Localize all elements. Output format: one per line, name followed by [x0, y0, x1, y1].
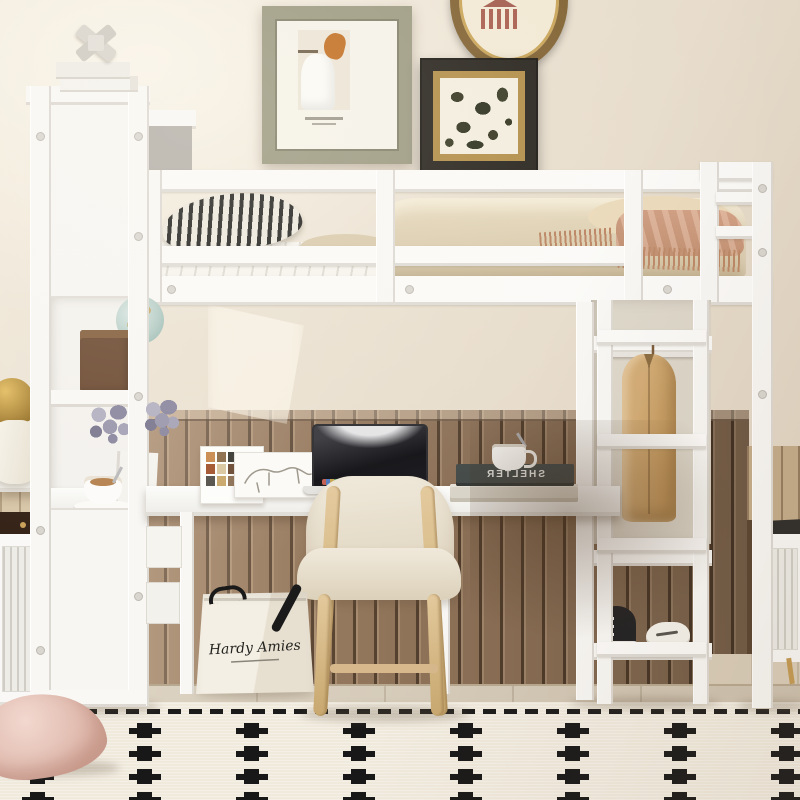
rug-motif: [450, 768, 482, 786]
poster-figure-body: [301, 54, 335, 110]
screw: [36, 132, 45, 141]
rug-motif: [343, 745, 375, 763]
screw: [134, 132, 143, 141]
rug-motif: [129, 768, 161, 786]
sculpture-cube: [88, 35, 104, 51]
svg-text:Hardy Amies: Hardy Amies: [207, 638, 301, 659]
oval-building-sketch: [481, 0, 519, 31]
screw: [134, 232, 143, 241]
screw: [663, 285, 672, 294]
poster-caption-line-2: [312, 123, 336, 125]
rug-motif: [22, 791, 54, 800]
guard-post-right: [624, 170, 643, 302]
rug-motif: [771, 768, 800, 786]
rug-motif: [450, 722, 482, 740]
chair-wall-shadow: [470, 420, 750, 650]
underdesk-side-panel: [180, 512, 194, 694]
footboard-bar-1: [716, 192, 752, 205]
rug-motif: [129, 722, 161, 740]
storage-box-1: [146, 526, 182, 568]
chair-seat: [297, 548, 461, 600]
rug-motif: [664, 768, 696, 786]
bed-top-guardrail: [143, 170, 772, 192]
rug-motif: [771, 722, 800, 740]
rug-motif: [664, 722, 696, 740]
storage-box-2: [146, 582, 180, 624]
rug-motif: [664, 791, 696, 800]
rug-motif: [343, 791, 375, 800]
poster-caption-line: [305, 117, 343, 120]
screw: [36, 526, 45, 535]
screw: [758, 184, 767, 193]
rug-motif: [343, 722, 375, 740]
shopping-bag: Hardy Amies: [196, 590, 314, 694]
rug-motif: [236, 745, 268, 763]
black-gold-frame: [420, 58, 538, 174]
screw: [167, 285, 176, 294]
poster-artwork: [298, 30, 350, 110]
rug-motif: [450, 745, 482, 763]
rug-motif: [557, 722, 589, 740]
rug-motif: [236, 722, 268, 740]
tower-side-shadow-panel: [146, 126, 192, 176]
rug-motif: [557, 768, 589, 786]
tower-upper-door: [46, 102, 130, 298]
screw: [405, 285, 414, 294]
bedroom-scene: SHELTER Hardy Amies: [0, 0, 800, 800]
screw: [134, 392, 143, 401]
tower-stile-left: [30, 86, 51, 706]
radio-knob: [20, 522, 26, 528]
rug-motif: [771, 745, 800, 763]
floral-artwork: [433, 71, 525, 161]
guard-post-center: [376, 170, 395, 302]
rug-motif: [129, 745, 161, 763]
screw: [134, 592, 143, 601]
knot-sculpture: [68, 18, 124, 68]
sage-picture-frame: [262, 6, 412, 164]
rug-motif: [236, 791, 268, 800]
screw: [36, 646, 45, 655]
rug-motif: [236, 768, 268, 786]
coffee-cup: [74, 474, 134, 512]
tower-lower-door: [46, 508, 130, 692]
screw: [758, 248, 767, 257]
footboard-bar-2: [716, 226, 752, 239]
screw: [758, 390, 767, 399]
rug-motif: [557, 791, 589, 800]
rug-motif: [450, 791, 482, 800]
rug-motif: [129, 791, 161, 800]
bed-right-leg: [752, 162, 773, 708]
rug-motif: [343, 768, 375, 786]
rug-motif: [557, 745, 589, 763]
hydrangea-right: [140, 394, 184, 438]
bag-brand-script: Hardy Amies: [197, 634, 313, 668]
chair-stretcher: [330, 664, 438, 673]
rug-motif: [771, 791, 800, 800]
rug-motif: [664, 745, 696, 763]
speaker-box: [80, 330, 134, 392]
ladder-rung-1: [597, 330, 706, 345]
poster-shelf-line: [298, 50, 318, 53]
